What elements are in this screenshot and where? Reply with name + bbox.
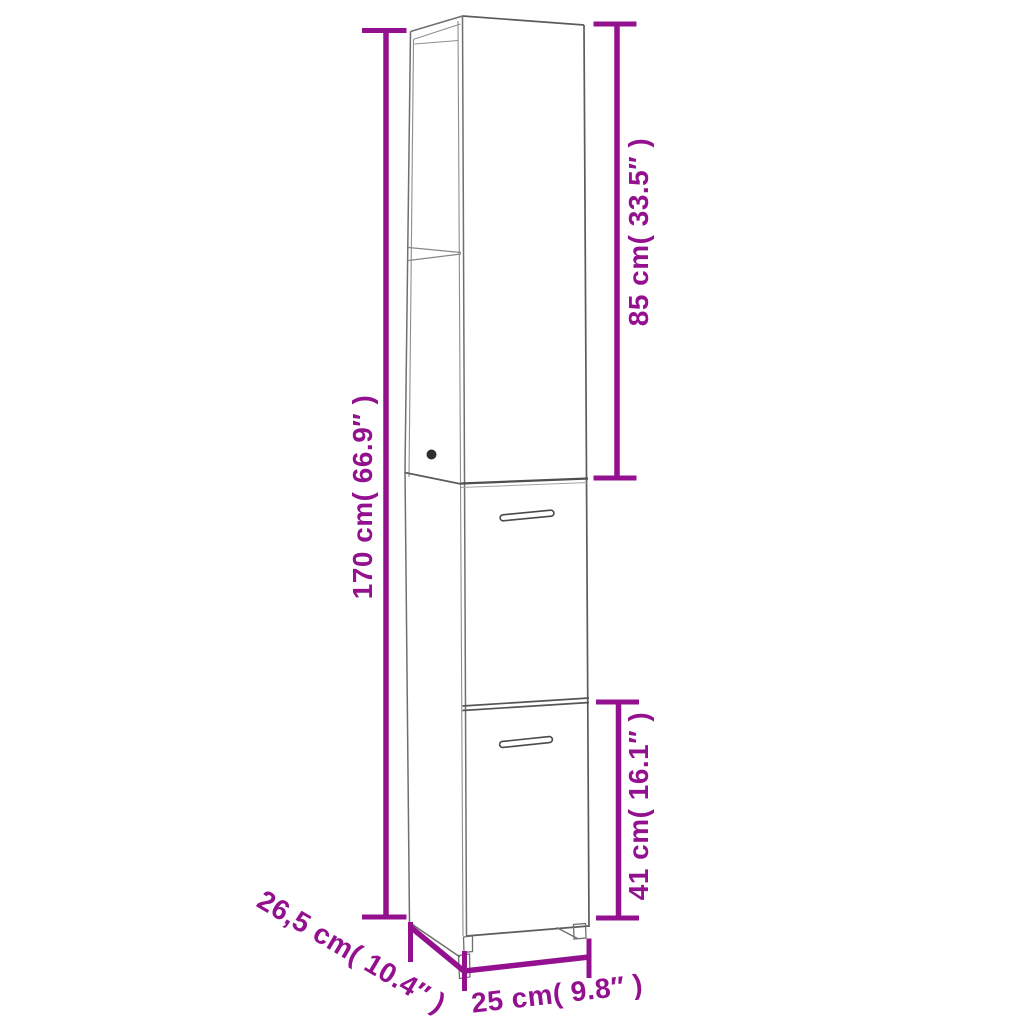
section-divider-side <box>405 473 462 485</box>
middle-door-handle <box>500 510 554 521</box>
cabinet-top-back-line <box>415 41 459 45</box>
cam-lock-dot <box>427 450 437 460</box>
cabinet-left-edge-outer <box>405 32 411 923</box>
diagram-canvas: 170 cm( 66.9″ ) 85 cm( 33.5″ ) 41 cm( 16… <box>0 0 1024 1024</box>
dim-width-line <box>465 957 590 971</box>
cabinet-top-edge <box>463 16 585 25</box>
cabinet-right-edge <box>584 25 589 927</box>
shelf-front-edge <box>409 248 462 253</box>
front-left-foot <box>464 936 473 953</box>
door-gap-upper-line <box>463 698 590 706</box>
label-upper-height: 85 cm( 33.5″ ) <box>623 138 654 327</box>
door-gap-lower-line <box>463 703 590 711</box>
cabinet-top-ridge <box>411 16 463 32</box>
cabinet-line-art <box>405 16 590 979</box>
cabinet-front-left-edge-outer <box>463 16 467 936</box>
side-panel-bottom-edge <box>410 923 461 958</box>
cabinet-top-ridge-inner <box>413 24 461 40</box>
label-depth: 26,5 cm( 10.4″ ) <box>252 884 451 1019</box>
shelf-bottom-edge <box>409 254 462 261</box>
dimension-labels: 170 cm( 66.9″ ) 85 cm( 33.5″ ) 41 cm( 16… <box>252 138 654 1019</box>
label-total-height: 170 cm( 66.9″ ) <box>347 395 378 600</box>
dim-depth-line <box>411 927 465 972</box>
label-width: 25 cm( 9.8″ ) <box>470 968 645 1018</box>
dimension-diagram: 170 cm( 66.9″ ) 85 cm( 33.5″ ) 41 cm( 16… <box>0 0 1024 1024</box>
dimension-lines <box>362 24 639 991</box>
cabinet-front-left-edge-inner <box>458 21 463 936</box>
label-lower-height: 41 cm( 16.1″ ) <box>623 712 654 901</box>
bottom-door-handle <box>499 736 552 748</box>
